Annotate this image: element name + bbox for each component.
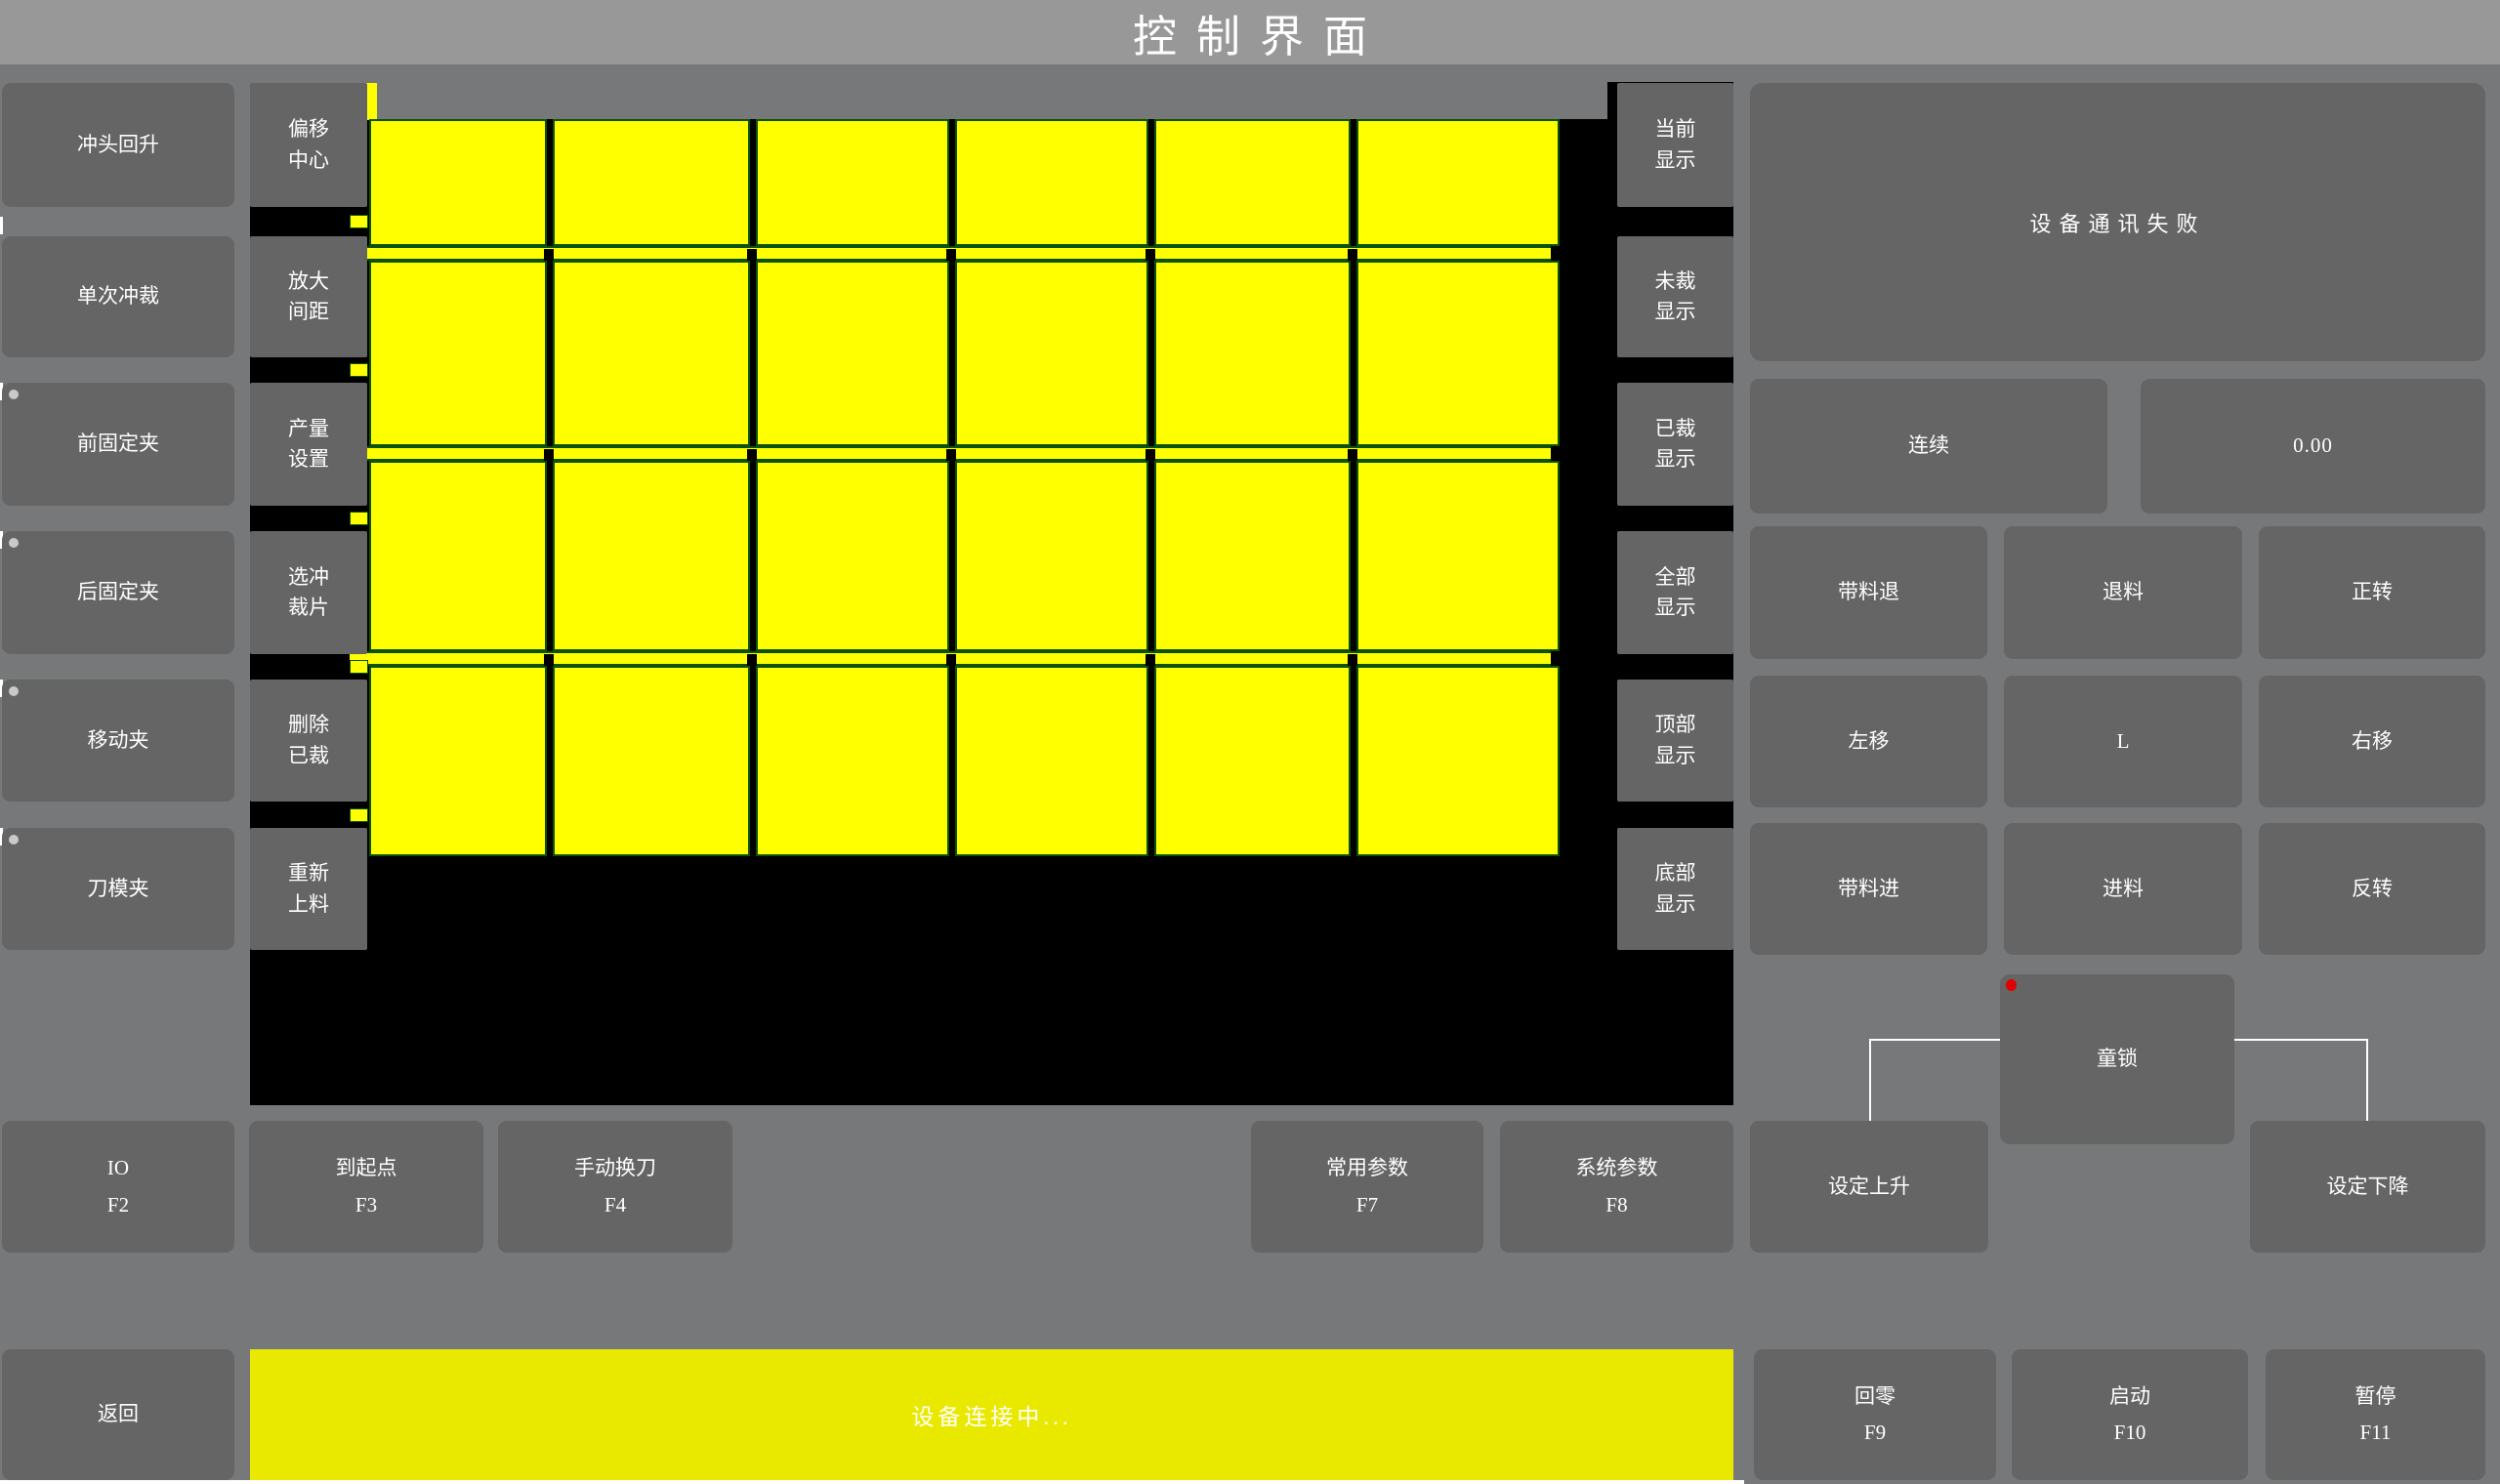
cut-notch xyxy=(1551,446,1562,461)
l-button[interactable]: L xyxy=(2004,676,2242,807)
button-label: 带料进 xyxy=(1838,874,1899,905)
cut-notch xyxy=(946,654,956,666)
manual-tool-change-button[interactable]: 手动换刀 F4 xyxy=(498,1121,732,1253)
enlarge-spacing-button[interactable]: 放大 间距 xyxy=(250,236,367,357)
io-button[interactable]: IO F2 xyxy=(2,1121,234,1253)
state-indicator-dot xyxy=(9,835,19,845)
connection-status-bar: 设备连接中... xyxy=(250,1349,1733,1480)
state-indicator-dot xyxy=(9,538,19,548)
device-status-message: 设备通讯失败 xyxy=(2029,207,2205,238)
cut-notch xyxy=(1146,449,1155,461)
common-params-button[interactable]: 常用参数 F7 xyxy=(1251,1121,1483,1253)
web-strip xyxy=(350,246,1562,261)
cut-notch xyxy=(946,249,956,261)
fn-key-label: F7 xyxy=(1356,1190,1378,1221)
connection-status-text: 设备连接中... xyxy=(911,1398,1071,1431)
web-strip xyxy=(350,446,1562,461)
button-label: 启动 xyxy=(2109,1381,2150,1413)
button-label: 删除 已裁 xyxy=(288,710,329,771)
material-piece[interactable] xyxy=(369,461,547,651)
button-label: 后固定夹 xyxy=(77,577,159,608)
childlock-connector-line xyxy=(2366,1039,2368,1121)
cut-notch xyxy=(544,654,554,666)
childlock-connector-line xyxy=(1869,1039,2002,1041)
fn-key-label: F10 xyxy=(2114,1418,2146,1449)
die-clamp-button[interactable]: 刀模夹 xyxy=(2,828,234,950)
cut-notch xyxy=(1348,449,1357,461)
button-label: 左移 xyxy=(1849,726,1890,758)
web-strip xyxy=(350,651,1562,666)
web-strip-tab xyxy=(350,808,368,822)
button-label: 常用参数 xyxy=(1326,1153,1408,1184)
show-bottom-button[interactable]: 底部 显示 xyxy=(1617,828,1733,950)
control-screen: 控制界面 冲头回升 单次冲裁 前固定夹 后固定夹 移动夹 刀模夹 偏移 中心 放… xyxy=(0,0,2500,1484)
value-text: 0.00 xyxy=(2293,431,2333,462)
punch-raise-button[interactable]: 冲头回升 xyxy=(2,83,234,207)
button-label: 移动夹 xyxy=(88,725,149,757)
button-label: 前固定夹 xyxy=(77,429,159,460)
button-label: 系统参数 xyxy=(1576,1153,1658,1184)
button-label: 放大 间距 xyxy=(288,267,329,328)
set-rise-button[interactable]: 设定上升 xyxy=(1750,1121,1988,1253)
start-button[interactable]: 启动 F10 xyxy=(2012,1349,2248,1480)
reload-material-button[interactable]: 重新 上料 xyxy=(250,828,367,950)
material-piece[interactable] xyxy=(756,261,949,446)
bottom-edge-line xyxy=(0,1480,1744,1484)
material-piece[interactable] xyxy=(756,461,949,651)
yield-setting-button[interactable]: 产量 设置 xyxy=(250,383,367,506)
moving-clamp-button[interactable]: 移动夹 xyxy=(2,680,234,802)
material-piece[interactable] xyxy=(1154,261,1351,446)
continuous-mode-button[interactable]: 连续 xyxy=(1750,379,2107,514)
material-piece[interactable] xyxy=(955,666,1148,856)
material-piece[interactable] xyxy=(553,461,750,651)
button-label: IO xyxy=(107,1153,129,1184)
value-display[interactable]: 0.00 xyxy=(2141,379,2485,514)
child-lock-indicator-dot xyxy=(2006,979,2017,991)
page-title: 控制界面 xyxy=(1113,1,1387,64)
button-label: 已裁 显示 xyxy=(1655,414,1696,475)
button-label: 选冲 裁片 xyxy=(288,562,329,624)
child-lock-button[interactable]: 童锁 xyxy=(2000,974,2234,1144)
material-piece[interactable] xyxy=(1356,261,1560,446)
button-label: 进料 xyxy=(2103,874,2144,905)
material-piece[interactable] xyxy=(756,119,949,246)
strip-back-button[interactable]: 带料退 xyxy=(1750,526,1987,659)
button-label: 退料 xyxy=(2103,577,2144,608)
web-strip-tab xyxy=(350,660,368,674)
button-label: 暂停 xyxy=(2355,1381,2396,1413)
button-label: 正转 xyxy=(2352,577,2393,608)
button-label: 童锁 xyxy=(2097,1044,2138,1075)
material-piece[interactable] xyxy=(369,119,547,246)
cut-notch xyxy=(1348,654,1357,666)
state-indicator-dot xyxy=(9,686,19,696)
unload-button[interactable]: 退料 xyxy=(2004,526,2242,659)
button-label: 设定下降 xyxy=(2327,1172,2409,1203)
button-label: 连续 xyxy=(1908,431,1949,462)
button-label: 偏移 中心 xyxy=(288,114,329,176)
button-label: 全部 显示 xyxy=(1655,562,1696,624)
button-label: 底部 显示 xyxy=(1655,858,1696,920)
button-label: 刀模夹 xyxy=(88,874,149,905)
cut-notch xyxy=(544,249,554,261)
web-strip-tab xyxy=(350,363,368,377)
material-piece[interactable] xyxy=(1154,461,1351,651)
material-piece[interactable] xyxy=(1154,119,1351,246)
fn-key-label: F9 xyxy=(1864,1418,1886,1449)
fn-key-label: F3 xyxy=(355,1190,377,1221)
show-cut-button[interactable]: 已裁 显示 xyxy=(1617,383,1733,506)
material-piece[interactable] xyxy=(1356,461,1560,651)
system-params-button[interactable]: 系统参数 F8 xyxy=(1500,1121,1733,1253)
button-label: 设定上升 xyxy=(1828,1172,1910,1203)
cut-notch xyxy=(1348,249,1357,261)
cut-notch xyxy=(1146,249,1155,261)
button-label: 反转 xyxy=(2352,874,2393,905)
material-piece[interactable] xyxy=(369,261,547,446)
cut-notch xyxy=(1551,651,1562,666)
go-origin-button[interactable]: 到起点 F3 xyxy=(249,1121,483,1253)
cut-notch xyxy=(946,449,956,461)
material-piece[interactable] xyxy=(1154,666,1351,856)
front-clamp-button[interactable]: 前固定夹 xyxy=(2,383,234,506)
forward-rotate-button[interactable]: 正转 xyxy=(2259,526,2485,659)
select-piece-button[interactable]: 选冲 裁片 xyxy=(250,531,367,654)
button-label: 右移 xyxy=(2352,726,2393,758)
material-piece[interactable] xyxy=(955,461,1148,651)
button-label: 未裁 显示 xyxy=(1655,267,1696,328)
set-lower-button[interactable]: 设定下降 xyxy=(2250,1121,2485,1253)
pause-button[interactable]: 暂停 F11 xyxy=(2266,1349,2485,1480)
reverse-rotate-button[interactable]: 反转 xyxy=(2259,823,2485,955)
button-label: 单次冲裁 xyxy=(77,281,159,312)
rear-clamp-button[interactable]: 后固定夹 xyxy=(2,531,234,654)
material-piece[interactable] xyxy=(369,666,547,856)
cut-notch xyxy=(747,449,757,461)
button-label: 产量 设置 xyxy=(288,414,329,475)
strip-feed-button[interactable]: 带料进 xyxy=(1750,823,1987,955)
show-current-button[interactable]: 当前 显示 xyxy=(1617,83,1733,207)
home-zero-button[interactable]: 回零 F9 xyxy=(1754,1349,1996,1480)
fn-key-label: F4 xyxy=(604,1190,626,1221)
button-label: 顶部 显示 xyxy=(1655,710,1696,771)
single-punch-button[interactable]: 单次冲裁 xyxy=(2,236,234,357)
button-label: 当前 显示 xyxy=(1655,114,1696,176)
material-piece[interactable] xyxy=(756,666,949,856)
show-top-button[interactable]: 顶部 显示 xyxy=(1617,680,1733,802)
move-right-button[interactable]: 右移 xyxy=(2259,676,2485,807)
device-status-panel: 设备通讯失败 xyxy=(1750,83,2485,361)
show-uncut-button[interactable]: 未裁 显示 xyxy=(1617,236,1733,357)
title-bar: 控制界面 xyxy=(0,0,2500,64)
material-piece[interactable] xyxy=(955,261,1148,446)
material-piece[interactable] xyxy=(553,666,750,856)
cut-notch xyxy=(747,654,757,666)
fn-key-label: F8 xyxy=(1605,1190,1627,1221)
material-piece[interactable] xyxy=(955,119,1148,246)
state-indicator-dot xyxy=(9,390,19,399)
button-label: 带料退 xyxy=(1838,577,1899,608)
button-label: 冲头回升 xyxy=(77,130,159,161)
web-strip-tab xyxy=(350,512,368,525)
button-label: L xyxy=(2117,726,2130,758)
fn-key-label: F2 xyxy=(107,1190,129,1221)
button-label: 手动换刀 xyxy=(574,1153,656,1184)
button-label: 到起点 xyxy=(336,1153,397,1184)
offset-center-button[interactable]: 偏移 中心 xyxy=(250,83,367,207)
cut-notch xyxy=(1551,246,1562,261)
cut-notch xyxy=(544,449,554,461)
material-piece[interactable] xyxy=(1356,666,1560,856)
material-piece[interactable] xyxy=(1356,119,1560,246)
cut-notch xyxy=(1146,654,1155,666)
material-top-tab xyxy=(366,83,377,120)
delete-cut-button[interactable]: 删除 已裁 xyxy=(250,680,367,802)
back-button[interactable]: 返回 xyxy=(2,1349,234,1480)
fn-key-label: F11 xyxy=(2360,1418,2392,1449)
material-piece[interactable] xyxy=(553,119,750,246)
feed-button[interactable]: 进料 xyxy=(2004,823,2242,955)
material-piece[interactable] xyxy=(553,261,750,446)
childlock-connector-line xyxy=(2234,1039,2368,1041)
show-all-button[interactable]: 全部 显示 xyxy=(1617,531,1733,654)
button-label: 重新 上料 xyxy=(288,858,329,920)
button-label: 返回 xyxy=(98,1399,139,1430)
edge-mark xyxy=(0,217,3,234)
web-strip-tab xyxy=(350,215,368,228)
cut-notch xyxy=(747,249,757,261)
childlock-connector-line xyxy=(1869,1039,1871,1121)
button-label: 回零 xyxy=(1854,1381,1896,1413)
move-left-button[interactable]: 左移 xyxy=(1750,676,1987,807)
